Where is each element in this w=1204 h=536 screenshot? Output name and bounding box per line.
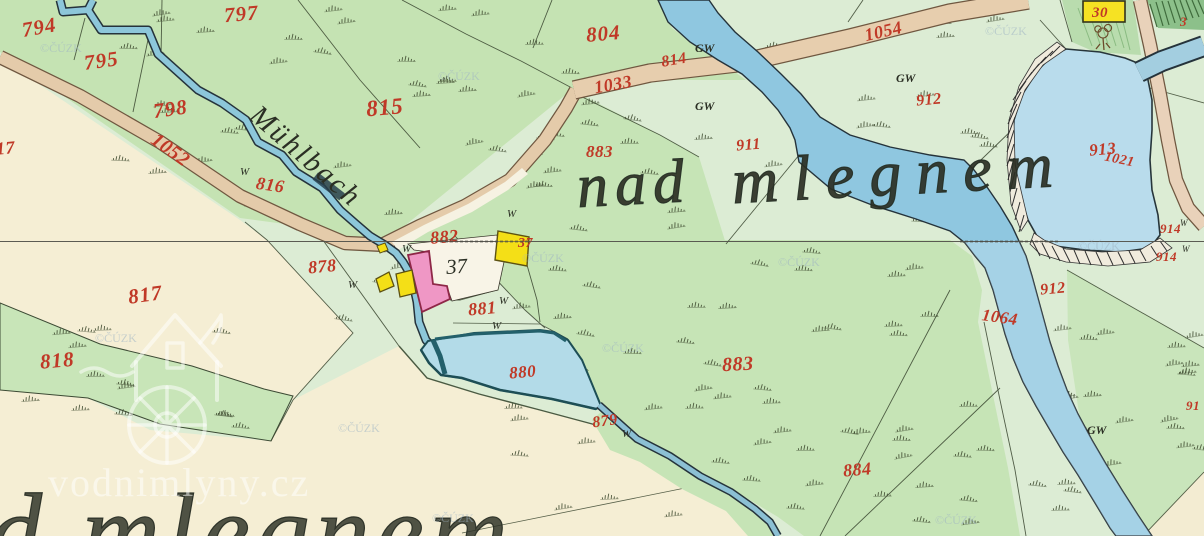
svg-text:804: 804	[585, 20, 621, 47]
svg-text:©ČÚZK: ©ČÚZK	[602, 341, 644, 355]
svg-text:884: 884	[842, 458, 872, 480]
svg-text:©ČÚZK: ©ČÚZK	[432, 511, 474, 525]
svg-text:W: W	[240, 166, 250, 178]
svg-text:GW: GW	[695, 41, 716, 55]
svg-text:©ČÚZK: ©ČÚZK	[522, 251, 564, 265]
svg-text:©ČÚZK: ©ČÚZK	[438, 69, 480, 83]
svg-text:©ČÚZK: ©ČÚZK	[935, 513, 977, 527]
svg-text:W: W	[492, 320, 502, 332]
svg-text:798: 798	[152, 95, 190, 124]
svg-text:3: 3	[1179, 14, 1187, 29]
svg-text:881: 881	[467, 297, 497, 319]
svg-text:30: 30	[1091, 5, 1108, 21]
svg-text:W: W	[499, 295, 509, 307]
svg-text:879: 879	[591, 411, 619, 431]
svg-text:37: 37	[517, 236, 534, 251]
svg-text:912: 912	[915, 90, 942, 109]
svg-text:816: 816	[255, 173, 286, 197]
svg-text:882: 882	[429, 225, 459, 247]
svg-text:818: 818	[39, 347, 75, 374]
svg-text:GW: GW	[695, 99, 716, 113]
svg-text:W: W	[507, 208, 517, 220]
svg-text:©ČÚZK: ©ČÚZK	[985, 24, 1027, 38]
svg-text:878: 878	[307, 255, 337, 277]
svg-text:797: 797	[223, 0, 260, 27]
svg-text:nad: nad	[575, 147, 692, 221]
svg-text:©ČÚZK: ©ČÚZK	[338, 421, 380, 435]
svg-text:91: 91	[1186, 398, 1200, 413]
svg-text:©ČÚZK: ©ČÚZK	[95, 331, 137, 345]
svg-text:912: 912	[1039, 279, 1066, 298]
svg-text:914: 914	[1156, 249, 1177, 264]
svg-text:vodnimlyny.cz: vodnimlyny.cz	[48, 460, 310, 505]
svg-text:©ČÚZK: ©ČÚZK	[1078, 239, 1120, 253]
svg-text:GW: GW	[1087, 423, 1108, 437]
svg-text:914: 914	[1160, 221, 1181, 236]
svg-text:37: 37	[444, 253, 469, 279]
svg-text:815: 815	[365, 93, 405, 121]
svg-text:817: 817	[127, 280, 165, 309]
svg-text:©ČÚZK: ©ČÚZK	[778, 255, 820, 269]
svg-text:17: 17	[0, 137, 16, 159]
svg-text:W: W	[348, 279, 358, 291]
svg-text:880: 880	[508, 361, 537, 382]
svg-text:©ČÚZK: ©ČÚZK	[40, 41, 82, 55]
svg-text:W: W	[402, 243, 412, 255]
svg-text:W: W	[622, 428, 632, 440]
svg-text:d: d	[0, 473, 43, 536]
svg-text:GW: GW	[896, 71, 917, 85]
svg-text:795: 795	[83, 46, 121, 75]
svg-text:883: 883	[722, 353, 755, 377]
